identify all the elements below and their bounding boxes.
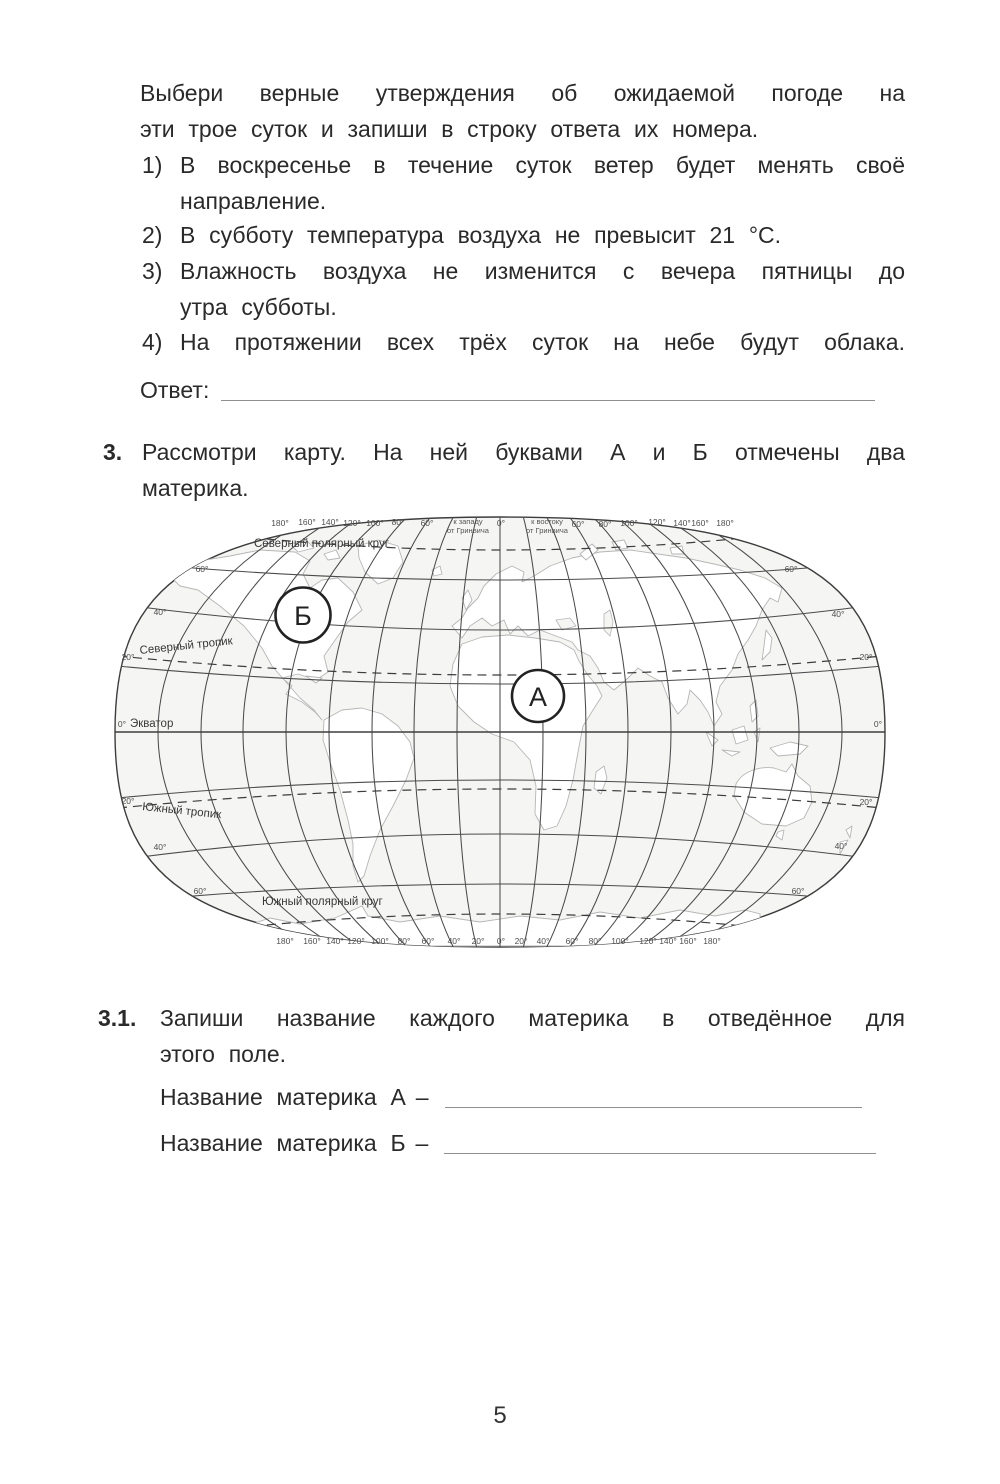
list-item-1-number: 1) xyxy=(142,147,162,183)
lon-label: 180° xyxy=(271,518,289,528)
lon-label: 140° xyxy=(321,517,339,527)
lon-label: 180° xyxy=(276,936,294,946)
lat-label: 60° xyxy=(196,564,209,574)
lon-label: 40° xyxy=(537,936,550,946)
list-item-3-line-1: Влажность воздуха не изменится с вечера … xyxy=(180,253,905,289)
task3-line-1: Рассмотри карту. На ней буквами А и Б от… xyxy=(142,434,905,470)
world-map: 180° 160° 140° 120° 100° 80° 60° к запад… xyxy=(110,514,890,954)
lon-label: 0° xyxy=(497,936,505,946)
continent-a-blank-line[interactable] xyxy=(445,1107,862,1108)
lat-label: 60° xyxy=(194,886,207,896)
north-polar-circle-label: Северный полярный круг xyxy=(254,538,389,550)
task2-intro: Выбери верные утверждения об ожидаемой п… xyxy=(140,75,905,147)
lon-label: 80° xyxy=(392,517,405,527)
lon-label: 20° xyxy=(515,936,528,946)
lon-label: 60° xyxy=(572,519,585,529)
south-polar-circle-label: Южный полярный круг xyxy=(262,896,383,908)
workbook-page: Выбери верные утверждения об ожидаемой п… xyxy=(0,0,1000,1484)
task3-1-text: Запиши название каждого материка в отвед… xyxy=(160,1000,905,1072)
bottom-longitude-labels: 180° 160° 140° 120° 100° 80° 60° 40° 20°… xyxy=(276,936,721,946)
lon-label: 120° xyxy=(347,936,365,946)
list-item-3-line-2: утра субботы. xyxy=(180,289,905,325)
task2-intro-line-2: эти трое суток и запиши в строку ответа … xyxy=(140,111,905,147)
lat-label: 20° xyxy=(860,652,873,662)
task3-text: Рассмотри карту. На ней буквами А и Б от… xyxy=(142,434,905,506)
continent-b-field-row: Название материка Б – xyxy=(160,1125,876,1161)
list-item-1: 1) В воскресенье в течение суток ветер б… xyxy=(140,147,905,219)
answer-row: Ответ: xyxy=(140,372,875,408)
lat-label: 20° xyxy=(122,652,135,662)
continent-a-dash: – xyxy=(416,1079,429,1115)
continent-a-field-label: Название материка А xyxy=(160,1079,406,1115)
lon-label: 80° xyxy=(599,519,612,529)
lon-label: 120° xyxy=(639,936,657,946)
list-item-3: 3) Влажность воздуха не изменится с вече… xyxy=(140,253,905,325)
page-number: 5 xyxy=(0,1402,1000,1430)
lat-label: 60° xyxy=(785,564,798,574)
equator-label: Экватор xyxy=(130,718,173,730)
list-item-2: 2) В субботу температура воздуха не прев… xyxy=(140,217,905,253)
lon-label: 140° xyxy=(673,518,691,528)
answer-label: Ответ: xyxy=(140,372,209,408)
west-of-greenwich-note-line2: от Гринвича xyxy=(447,526,490,535)
lon-label: 60° xyxy=(566,936,579,946)
marker-b-letter: Б xyxy=(294,601,312,631)
lon-label: 140° xyxy=(659,936,677,946)
lon-label: 180° xyxy=(716,518,734,528)
lon-label-zero: 0° xyxy=(497,518,505,528)
lon-label: 180° xyxy=(703,936,721,946)
lon-label: 60° xyxy=(421,518,434,528)
lon-label: 160° xyxy=(691,518,709,528)
task3-1-line-1: Запиши название каждого материка в отвед… xyxy=(160,1000,905,1036)
lat-label: 40° xyxy=(835,841,848,851)
lat-label: 0° xyxy=(874,719,882,729)
lat-label: 40° xyxy=(154,607,167,617)
lat-label: 60° xyxy=(792,886,805,896)
task3-number: 3. xyxy=(103,434,122,470)
lon-label: 20° xyxy=(472,936,485,946)
lon-label: 120° xyxy=(648,517,666,527)
continent-b-field-label: Название материка Б xyxy=(160,1125,406,1161)
continent-b-blank-line[interactable] xyxy=(444,1153,876,1154)
lon-label: 80° xyxy=(398,936,411,946)
task3-line-2: материка. xyxy=(142,470,905,506)
lon-label: 40° xyxy=(448,936,461,946)
continent-b-dash: – xyxy=(416,1125,429,1161)
lon-label: 60° xyxy=(422,936,435,946)
lon-label: 160° xyxy=(679,936,697,946)
lon-label: 100° xyxy=(620,518,638,528)
list-item-1-line-2: направление. xyxy=(180,183,905,219)
lat-label: 20° xyxy=(860,797,873,807)
continent-a-field-row: Название материка А – xyxy=(160,1079,862,1115)
lon-label: 160° xyxy=(298,517,316,527)
lon-label: 100° xyxy=(611,936,629,946)
east-of-greenwich-note-line2: от Гринвича xyxy=(526,526,569,535)
answer-blank-line[interactable] xyxy=(221,400,875,401)
task3-1-number: 3.1. xyxy=(98,1000,136,1036)
lon-label: 120° xyxy=(343,518,361,528)
list-item-2-line-1: В субботу температура воздуха не превыси… xyxy=(180,217,905,253)
lon-label: 80° xyxy=(589,936,602,946)
task2-intro-line-1: Выбери верные утверждения об ожидаемой п… xyxy=(140,75,905,111)
list-item-4-number: 4) xyxy=(142,324,162,360)
list-item-3-number: 3) xyxy=(142,253,162,289)
arctic-island-4 xyxy=(670,546,684,554)
lon-label: 100° xyxy=(366,518,384,528)
marker-a-letter: А xyxy=(529,682,547,712)
lat-label: 40° xyxy=(154,842,167,852)
lon-label: 160° xyxy=(303,936,321,946)
west-of-greenwich-note-line1: к западу xyxy=(453,517,483,526)
lon-label: 100° xyxy=(371,936,389,946)
lat-label: 40° xyxy=(832,609,845,619)
list-item-1-line-1: В воскресенье в течение суток ветер буде… xyxy=(180,147,905,183)
lat-label: 0° xyxy=(118,719,126,729)
lon-label: 140° xyxy=(326,936,344,946)
list-item-4-line-1: На протяжении всех трёх суток на небе бу… xyxy=(180,324,905,360)
east-of-greenwich-note-line1: к востоку xyxy=(531,517,563,526)
list-item-2-number: 2) xyxy=(142,217,162,253)
task3-1-line-2: этого поле. xyxy=(160,1036,905,1072)
list-item-4: 4) На протяжении всех трёх суток на небе… xyxy=(140,324,905,360)
lat-label: 20° xyxy=(122,796,135,806)
